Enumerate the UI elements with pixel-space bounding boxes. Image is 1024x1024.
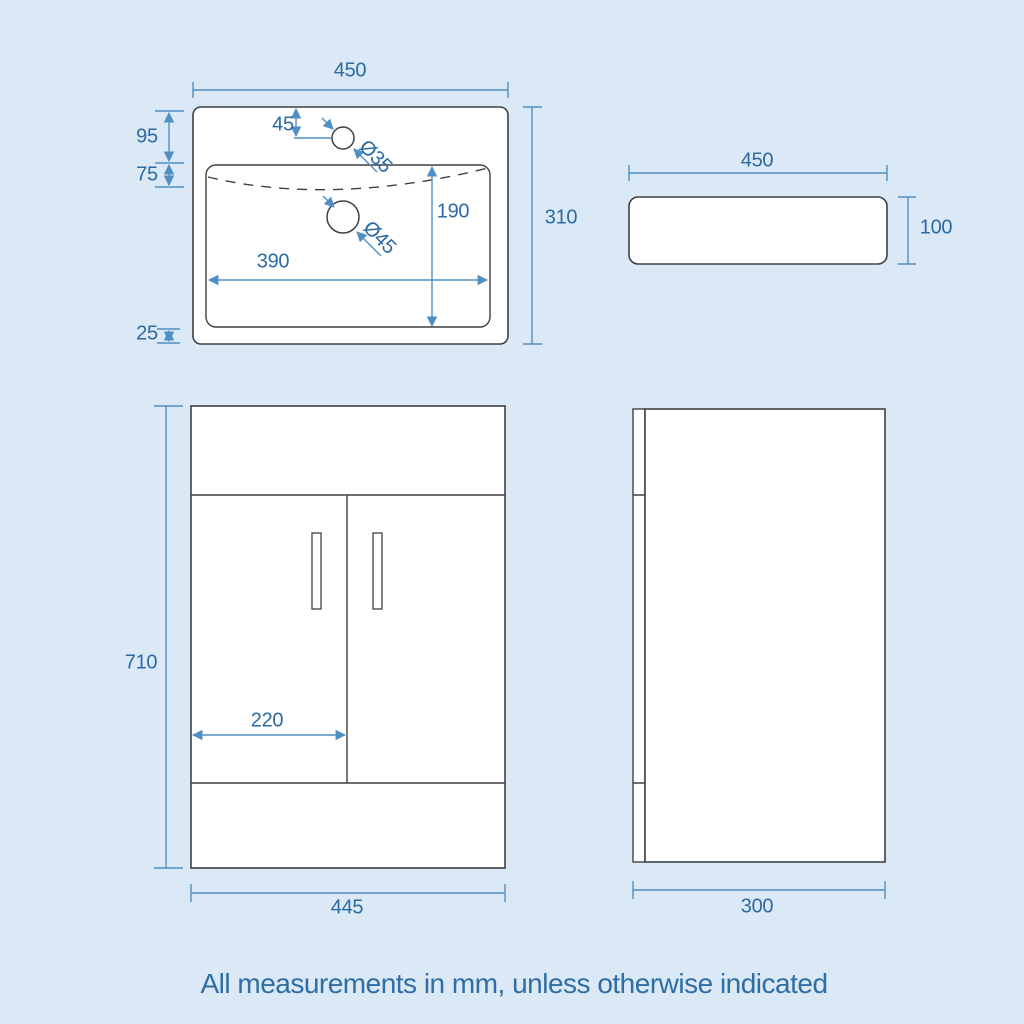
- dim-label-basin-width: 450: [334, 60, 366, 83]
- right-door-handle: [373, 533, 382, 609]
- measurements-note: All measurements in mm, unless otherwise…: [200, 968, 827, 1000]
- dim-label-basin-side-height: 100: [920, 217, 952, 240]
- dim-label-bowl-depth: 190: [437, 201, 469, 224]
- dim-label-bottom-gap: 25: [136, 323, 158, 346]
- cabinet-front-view: [191, 406, 505, 868]
- dim-label-basin-side-width: 450: [741, 150, 773, 173]
- cabinet-side-body: [645, 409, 885, 862]
- cabinet-side-door-edge: [633, 409, 645, 862]
- cabinet-outline: [191, 406, 505, 868]
- dim-label-tap-setback: 95: [136, 126, 158, 149]
- technical-drawing-page: 450 310 95 75 25 45 Ø35 Ø45 190 390 450 …: [0, 0, 1024, 1024]
- tap-hole-circle: [332, 127, 354, 149]
- basin-side-outline: [629, 197, 887, 264]
- left-door-handle: [312, 533, 321, 609]
- drawing-canvas: [0, 0, 1024, 1024]
- basin-plan-view: [193, 107, 508, 344]
- basin-side-view: [629, 197, 887, 264]
- waste-hole-circle: [327, 201, 359, 233]
- dim-label-tap-inset: 45: [272, 114, 294, 137]
- dim-ticks-cabinet-height: [154, 406, 183, 868]
- dim-label-door-width: 220: [251, 710, 283, 733]
- dim-label-cabinet-width: 445: [331, 897, 363, 920]
- dim-label-basin-height: 310: [545, 207, 577, 230]
- basin-bowl-outline: [206, 165, 490, 327]
- dim-label-bowl-width: 390: [257, 251, 289, 274]
- dim-ticks-basin-side-height: [898, 197, 916, 264]
- dim-label-rim-depth: 75: [136, 164, 158, 187]
- dim-label-cabinet-height: 710: [125, 652, 157, 675]
- dim-label-cabinet-depth: 300: [741, 896, 773, 919]
- cabinet-side-view: [633, 409, 885, 862]
